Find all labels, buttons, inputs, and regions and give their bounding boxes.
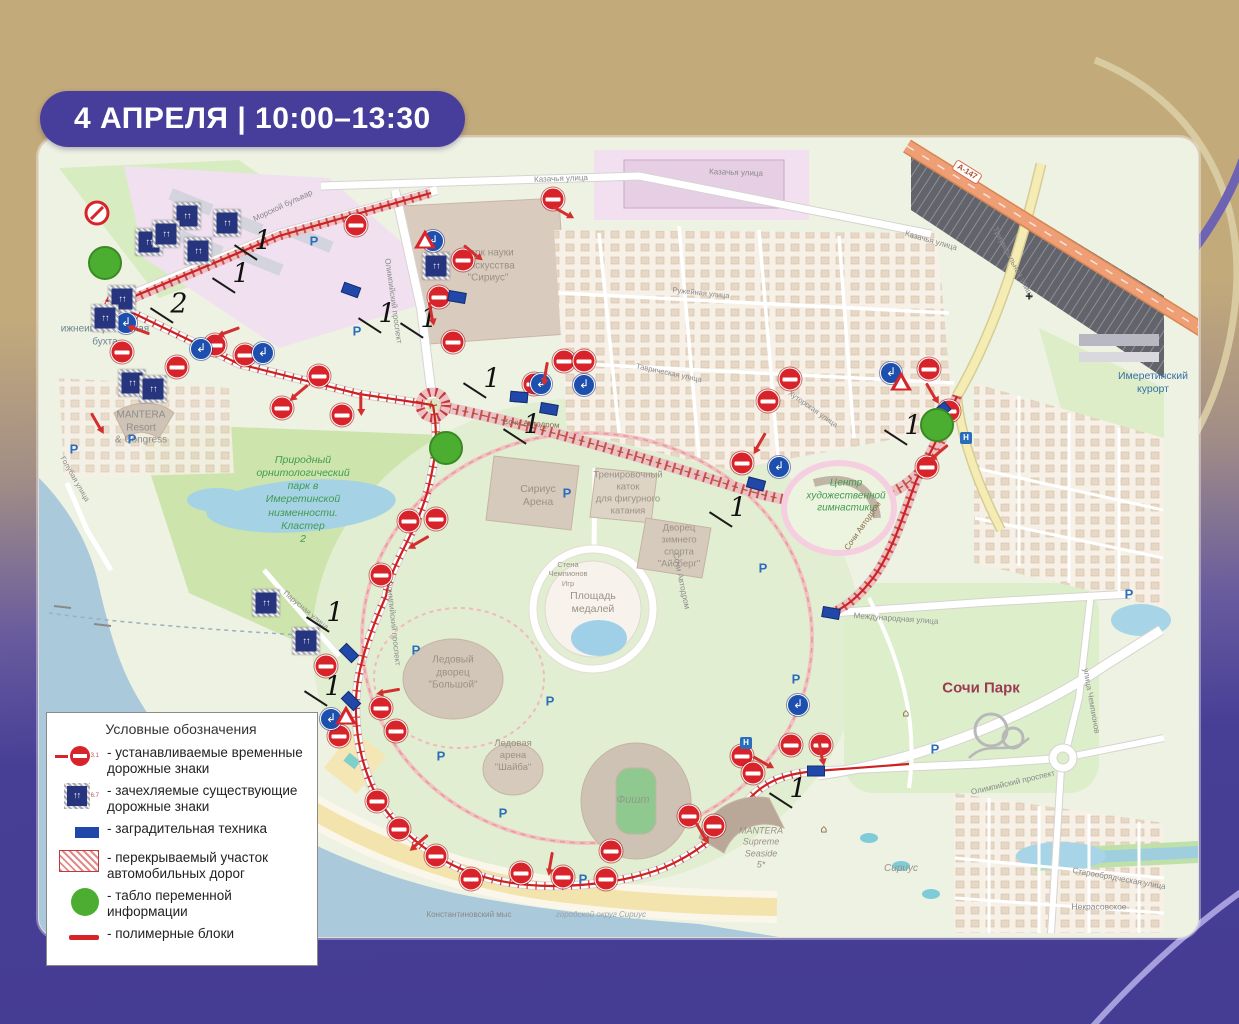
parking-icon: Р bbox=[546, 694, 555, 709]
parking-icon: Р bbox=[437, 749, 446, 764]
pointer-arrow-icon bbox=[293, 384, 308, 398]
poster-page: { "badge": { "text": "4 АПРЕЛЯ | 10:00–1… bbox=[0, 0, 1239, 1024]
legend-title: Условные обозначения bbox=[55, 721, 307, 737]
parking-icon: Р bbox=[128, 432, 137, 447]
no-entry-sign-icon bbox=[742, 762, 765, 785]
variable-info-board-icon bbox=[88, 246, 122, 280]
legend-sign-code: 6.7 bbox=[91, 793, 99, 799]
annotation-number: 1 bbox=[523, 412, 540, 439]
parking-icon: Р bbox=[70, 442, 79, 457]
parking-icon: Р bbox=[579, 872, 588, 887]
pointer-arrow-icon bbox=[90, 413, 101, 430]
mandatory-turn-sign-icon: ↲ bbox=[252, 342, 274, 364]
annotation-number: 1 bbox=[254, 228, 271, 255]
covered-existing-sign-icon: ↑↑ bbox=[92, 305, 119, 332]
pointer-arrow-icon bbox=[755, 433, 766, 450]
barrier-vehicle-icon bbox=[746, 476, 766, 491]
legend-item-label: - устанавливаемые временные дорожные зна… bbox=[107, 745, 307, 776]
covered-existing-sign-icon: ↑↑ bbox=[153, 221, 180, 248]
annotation-number: 1 bbox=[789, 776, 806, 803]
hotel-icon: Н bbox=[740, 737, 752, 749]
legend-item: - полимерные блоки bbox=[55, 926, 307, 948]
no-stopping-sign-icon bbox=[85, 201, 110, 226]
no-entry-sign-icon bbox=[388, 818, 411, 841]
legend-item-label: - полимерные блоки bbox=[107, 926, 234, 942]
legend-item-label: - зачехляемые существующие дорожные знак… bbox=[107, 783, 307, 814]
no-entry-sign-icon bbox=[111, 341, 134, 364]
pointer-arrow-icon bbox=[933, 444, 948, 458]
info-board-icon bbox=[55, 888, 107, 916]
pointer-arrow-icon bbox=[382, 688, 400, 694]
no-entry-sign-icon bbox=[385, 720, 408, 743]
annotation-number: 1 bbox=[232, 261, 249, 288]
no-entry-sign-icon bbox=[345, 214, 368, 237]
annotation-number: 1 bbox=[729, 495, 746, 522]
no-entry-sign-icon bbox=[331, 404, 354, 427]
covered-existing-sign-icon: ↑↑ bbox=[253, 590, 280, 617]
no-entry-sign-icon bbox=[460, 868, 483, 891]
warning-triangle-sign-icon bbox=[335, 706, 357, 725]
legend-item: ↑↑6.7- зачехляемые существующие дорожные… bbox=[55, 783, 307, 814]
landmark-icon: ⌂ bbox=[903, 707, 910, 720]
legend-rows: 3.1- устанавливаемые временные дорожные … bbox=[55, 745, 307, 948]
pointer-arrow-icon bbox=[132, 327, 150, 336]
no-entry-sign-icon bbox=[600, 840, 623, 863]
warning-triangle-sign-icon bbox=[414, 230, 436, 249]
date-time-text: 4 АПРЕЛЯ | 10:00–13:30 bbox=[74, 102, 431, 135]
barrier-icon bbox=[55, 821, 107, 843]
no-entry-sign-icon bbox=[595, 868, 618, 891]
polymer-block-icon bbox=[55, 926, 107, 948]
parking-icon: Р bbox=[353, 324, 362, 339]
pointer-arrow-icon bbox=[413, 535, 430, 546]
parking-icon: Р bbox=[1125, 587, 1134, 602]
variable-info-board-icon bbox=[429, 431, 463, 465]
legend-item-label: - заградительная техника bbox=[107, 821, 267, 837]
hotel-icon: Н bbox=[960, 432, 972, 444]
church-icon: + bbox=[1025, 289, 1033, 304]
legend-item: - табло переменной информации bbox=[55, 888, 307, 919]
annotation-number: 1 bbox=[483, 366, 500, 393]
barrier-vehicle-icon bbox=[447, 290, 467, 304]
no-entry-sign-icon bbox=[510, 862, 533, 885]
no-entry-sign-icon bbox=[370, 697, 393, 720]
parking-icon: Р bbox=[931, 742, 940, 757]
covered-sign-icon: ↑↑6.7 bbox=[55, 783, 107, 809]
parking-icon: Р bbox=[310, 234, 319, 249]
barrier-vehicle-icon bbox=[821, 606, 841, 620]
pointer-arrow-icon bbox=[222, 327, 240, 336]
no-entry-sign-icon bbox=[308, 365, 331, 388]
no-entry-sign-icon bbox=[780, 734, 803, 757]
barrier-vehicle-icon bbox=[339, 643, 360, 664]
annotation-number: 1 bbox=[324, 674, 341, 701]
no-entry-sign-icon bbox=[573, 350, 596, 373]
parking-icon: Р bbox=[499, 806, 508, 821]
covered-existing-sign-icon: ↑↑ bbox=[293, 628, 320, 655]
no-entry-sign-icon bbox=[425, 508, 448, 531]
closed-road-icon bbox=[55, 850, 107, 872]
covered-existing-sign-icon: ↑↑ bbox=[423, 253, 450, 280]
mandatory-turn-sign-icon: ↲ bbox=[787, 694, 809, 716]
no-entry-sign-icon bbox=[425, 845, 448, 868]
barrier-vehicle-icon bbox=[539, 402, 559, 416]
annotation-number: 2 bbox=[170, 291, 187, 318]
no-entry-sign-icon bbox=[398, 510, 421, 533]
mandatory-turn-sign-icon: ↲ bbox=[190, 338, 212, 360]
pointer-arrow-icon bbox=[925, 383, 936, 400]
parking-icon: Р bbox=[759, 561, 768, 576]
covered-existing-sign-icon: ↑↑ bbox=[214, 210, 241, 237]
barrier-vehicle-icon bbox=[510, 391, 529, 404]
landmark-icon: ⌂ bbox=[821, 823, 828, 836]
pointer-arrow-icon bbox=[548, 852, 554, 870]
mandatory-turn-sign-icon: ↲ bbox=[573, 374, 595, 396]
no-entry-sign-icon bbox=[918, 358, 941, 381]
date-time-badge: 4 АПРЕЛЯ | 10:00–13:30 bbox=[40, 91, 465, 147]
barrier-vehicle-icon bbox=[341, 282, 362, 298]
barrier-vehicle-icon bbox=[807, 766, 825, 777]
pointer-arrow-icon bbox=[360, 392, 363, 410]
mandatory-turn-sign-icon: ↲ bbox=[768, 456, 790, 478]
no-entry-sign-icon bbox=[757, 390, 780, 413]
parking-icon: Р bbox=[412, 643, 421, 658]
parking-icon: Р bbox=[563, 486, 572, 501]
covered-existing-sign-icon: ↑↑ bbox=[140, 376, 167, 403]
legend-item-label: - перекрываемый участок автомобильных до… bbox=[107, 850, 307, 881]
no-entry-sign-icon bbox=[731, 452, 754, 475]
pointer-arrow-icon bbox=[413, 834, 428, 848]
no-entry-sign-icon bbox=[370, 564, 393, 587]
annotation-number: 1 bbox=[904, 413, 921, 440]
no-entry-sign-icon bbox=[703, 815, 726, 838]
legend-sign-code: 3.1 bbox=[91, 753, 99, 759]
legend-item: 3.1- устанавливаемые временные дорожные … bbox=[55, 745, 307, 776]
annotation-number: 1 bbox=[326, 600, 343, 627]
no-entry-sign-icon bbox=[779, 368, 802, 391]
temporary-sign-icon: 3.1 bbox=[55, 745, 107, 767]
annotation-number: 1 bbox=[378, 301, 395, 328]
no-entry-sign-icon bbox=[166, 356, 189, 379]
legend-item-label: - табло переменной информации bbox=[107, 888, 307, 919]
legend-item: - заградительная техника bbox=[55, 821, 307, 843]
map-legend: Условные обозначения 3.1- устанавливаемы… bbox=[46, 712, 318, 966]
variable-info-board-icon bbox=[920, 408, 954, 442]
parking-icon: Р bbox=[792, 672, 801, 687]
no-entry-sign-icon bbox=[552, 866, 575, 889]
warning-triangle-sign-icon bbox=[890, 372, 912, 391]
covered-existing-sign-icon: ↑↑ bbox=[185, 238, 212, 265]
legend-item: - перекрываемый участок автомобильных до… bbox=[55, 850, 307, 881]
no-entry-sign-icon bbox=[442, 331, 465, 354]
no-entry-sign-icon bbox=[366, 790, 389, 813]
